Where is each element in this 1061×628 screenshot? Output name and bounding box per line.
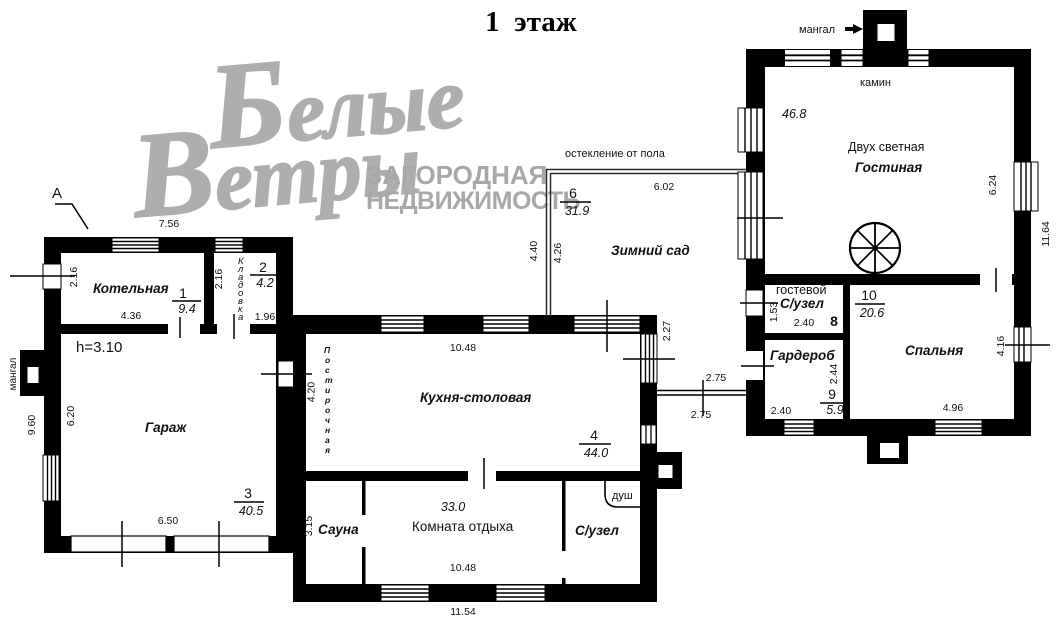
svg-text:2: 2 [259, 259, 267, 275]
svg-text:44.0: 44.0 [584, 446, 608, 460]
svg-text:6.02: 6.02 [654, 181, 675, 193]
svg-text:С/узел: С/узел [780, 296, 825, 311]
svg-text:С/узел: С/узел [575, 523, 620, 538]
svg-text:1 этаж: 1 этаж [485, 6, 577, 38]
svg-text:1: 1 [179, 285, 187, 301]
svg-text:Котельная: Котельная [93, 281, 169, 296]
svg-text:1.96: 1.96 [255, 311, 276, 323]
svg-text:2.40: 2.40 [794, 317, 815, 329]
svg-text:2.16: 2.16 [213, 269, 225, 290]
svg-text:9: 9 [828, 386, 836, 402]
svg-text:3.15: 3.15 [303, 516, 315, 537]
svg-text:6.20: 6.20 [65, 406, 77, 427]
svg-text:гостевой: гостевой [776, 283, 826, 297]
svg-text:6.24: 6.24 [987, 175, 999, 196]
svg-text:9.60: 9.60 [26, 415, 38, 436]
svg-text:h=3.10: h=3.10 [76, 339, 122, 356]
svg-text:Гостиная: Гостиная [855, 160, 922, 175]
svg-text:мангал: мангал [799, 24, 835, 36]
svg-text:Спальня: Спальня [905, 343, 963, 358]
svg-text:1.53: 1.53 [768, 302, 780, 323]
svg-text:Комната отдыха: Комната отдыха [412, 519, 514, 534]
svg-text:2.44: 2.44 [828, 364, 840, 385]
svg-text:8: 8 [830, 313, 838, 329]
svg-text:11.54: 11.54 [450, 606, 476, 618]
svg-text:4.96: 4.96 [943, 402, 964, 414]
svg-text:Гараж: Гараж [145, 420, 187, 435]
svg-text:9.4: 9.4 [178, 302, 195, 316]
svg-text:10: 10 [861, 287, 877, 303]
svg-text:камин: камин [860, 77, 891, 89]
svg-text:2.75: 2.75 [691, 409, 712, 421]
svg-text:Гардероб: Гардероб [770, 348, 835, 363]
svg-text:6.50: 6.50 [158, 515, 179, 527]
svg-text:ЗАГОРОДНАЯ: ЗАГОРОДНАЯ [366, 160, 547, 190]
svg-text:7.56: 7.56 [159, 218, 180, 230]
svg-text:4.40: 4.40 [528, 241, 540, 262]
svg-text:10.48: 10.48 [450, 342, 476, 354]
svg-text:31.9: 31.9 [565, 204, 589, 218]
svg-text:Зимний сад: Зимний сад [611, 243, 690, 258]
svg-text:душ: душ [612, 490, 633, 502]
svg-text:4.20: 4.20 [306, 382, 318, 403]
svg-text:4.2: 4.2 [256, 276, 273, 290]
svg-text:6: 6 [569, 185, 577, 201]
svg-text:46.8: 46.8 [782, 107, 806, 121]
svg-text:НЕДВИЖИМОСТЬ: НЕДВИЖИМОСТЬ [366, 187, 581, 215]
svg-text:4: 4 [590, 427, 598, 443]
svg-text:2.40: 2.40 [771, 405, 792, 417]
svg-text:2.16: 2.16 [68, 267, 80, 288]
svg-text:Сауна: Сауна [318, 522, 359, 537]
svg-text:А: А [52, 185, 62, 202]
svg-text:5.9: 5.9 [826, 403, 843, 417]
svg-text:40.5: 40.5 [239, 504, 263, 518]
svg-text:4.36: 4.36 [121, 310, 142, 322]
svg-text:33.0: 33.0 [441, 500, 465, 514]
svg-text:мангал: мангал [8, 357, 19, 390]
svg-text:10.48: 10.48 [450, 562, 476, 574]
svg-text:2.75: 2.75 [706, 372, 727, 384]
svg-text:2.27: 2.27 [661, 321, 673, 342]
svg-text:остекление от пола: остекление от пола [565, 148, 666, 160]
svg-text:4.26: 4.26 [552, 243, 564, 264]
svg-text:Кухня-столовая: Кухня-столовая [420, 390, 531, 405]
svg-text:3: 3 [244, 485, 252, 501]
svg-text:11.64: 11.64 [1040, 221, 1052, 247]
svg-text:Двух светная: Двух светная [848, 140, 924, 154]
svg-text:20.6: 20.6 [859, 306, 884, 320]
svg-text:4.16: 4.16 [995, 336, 1007, 357]
